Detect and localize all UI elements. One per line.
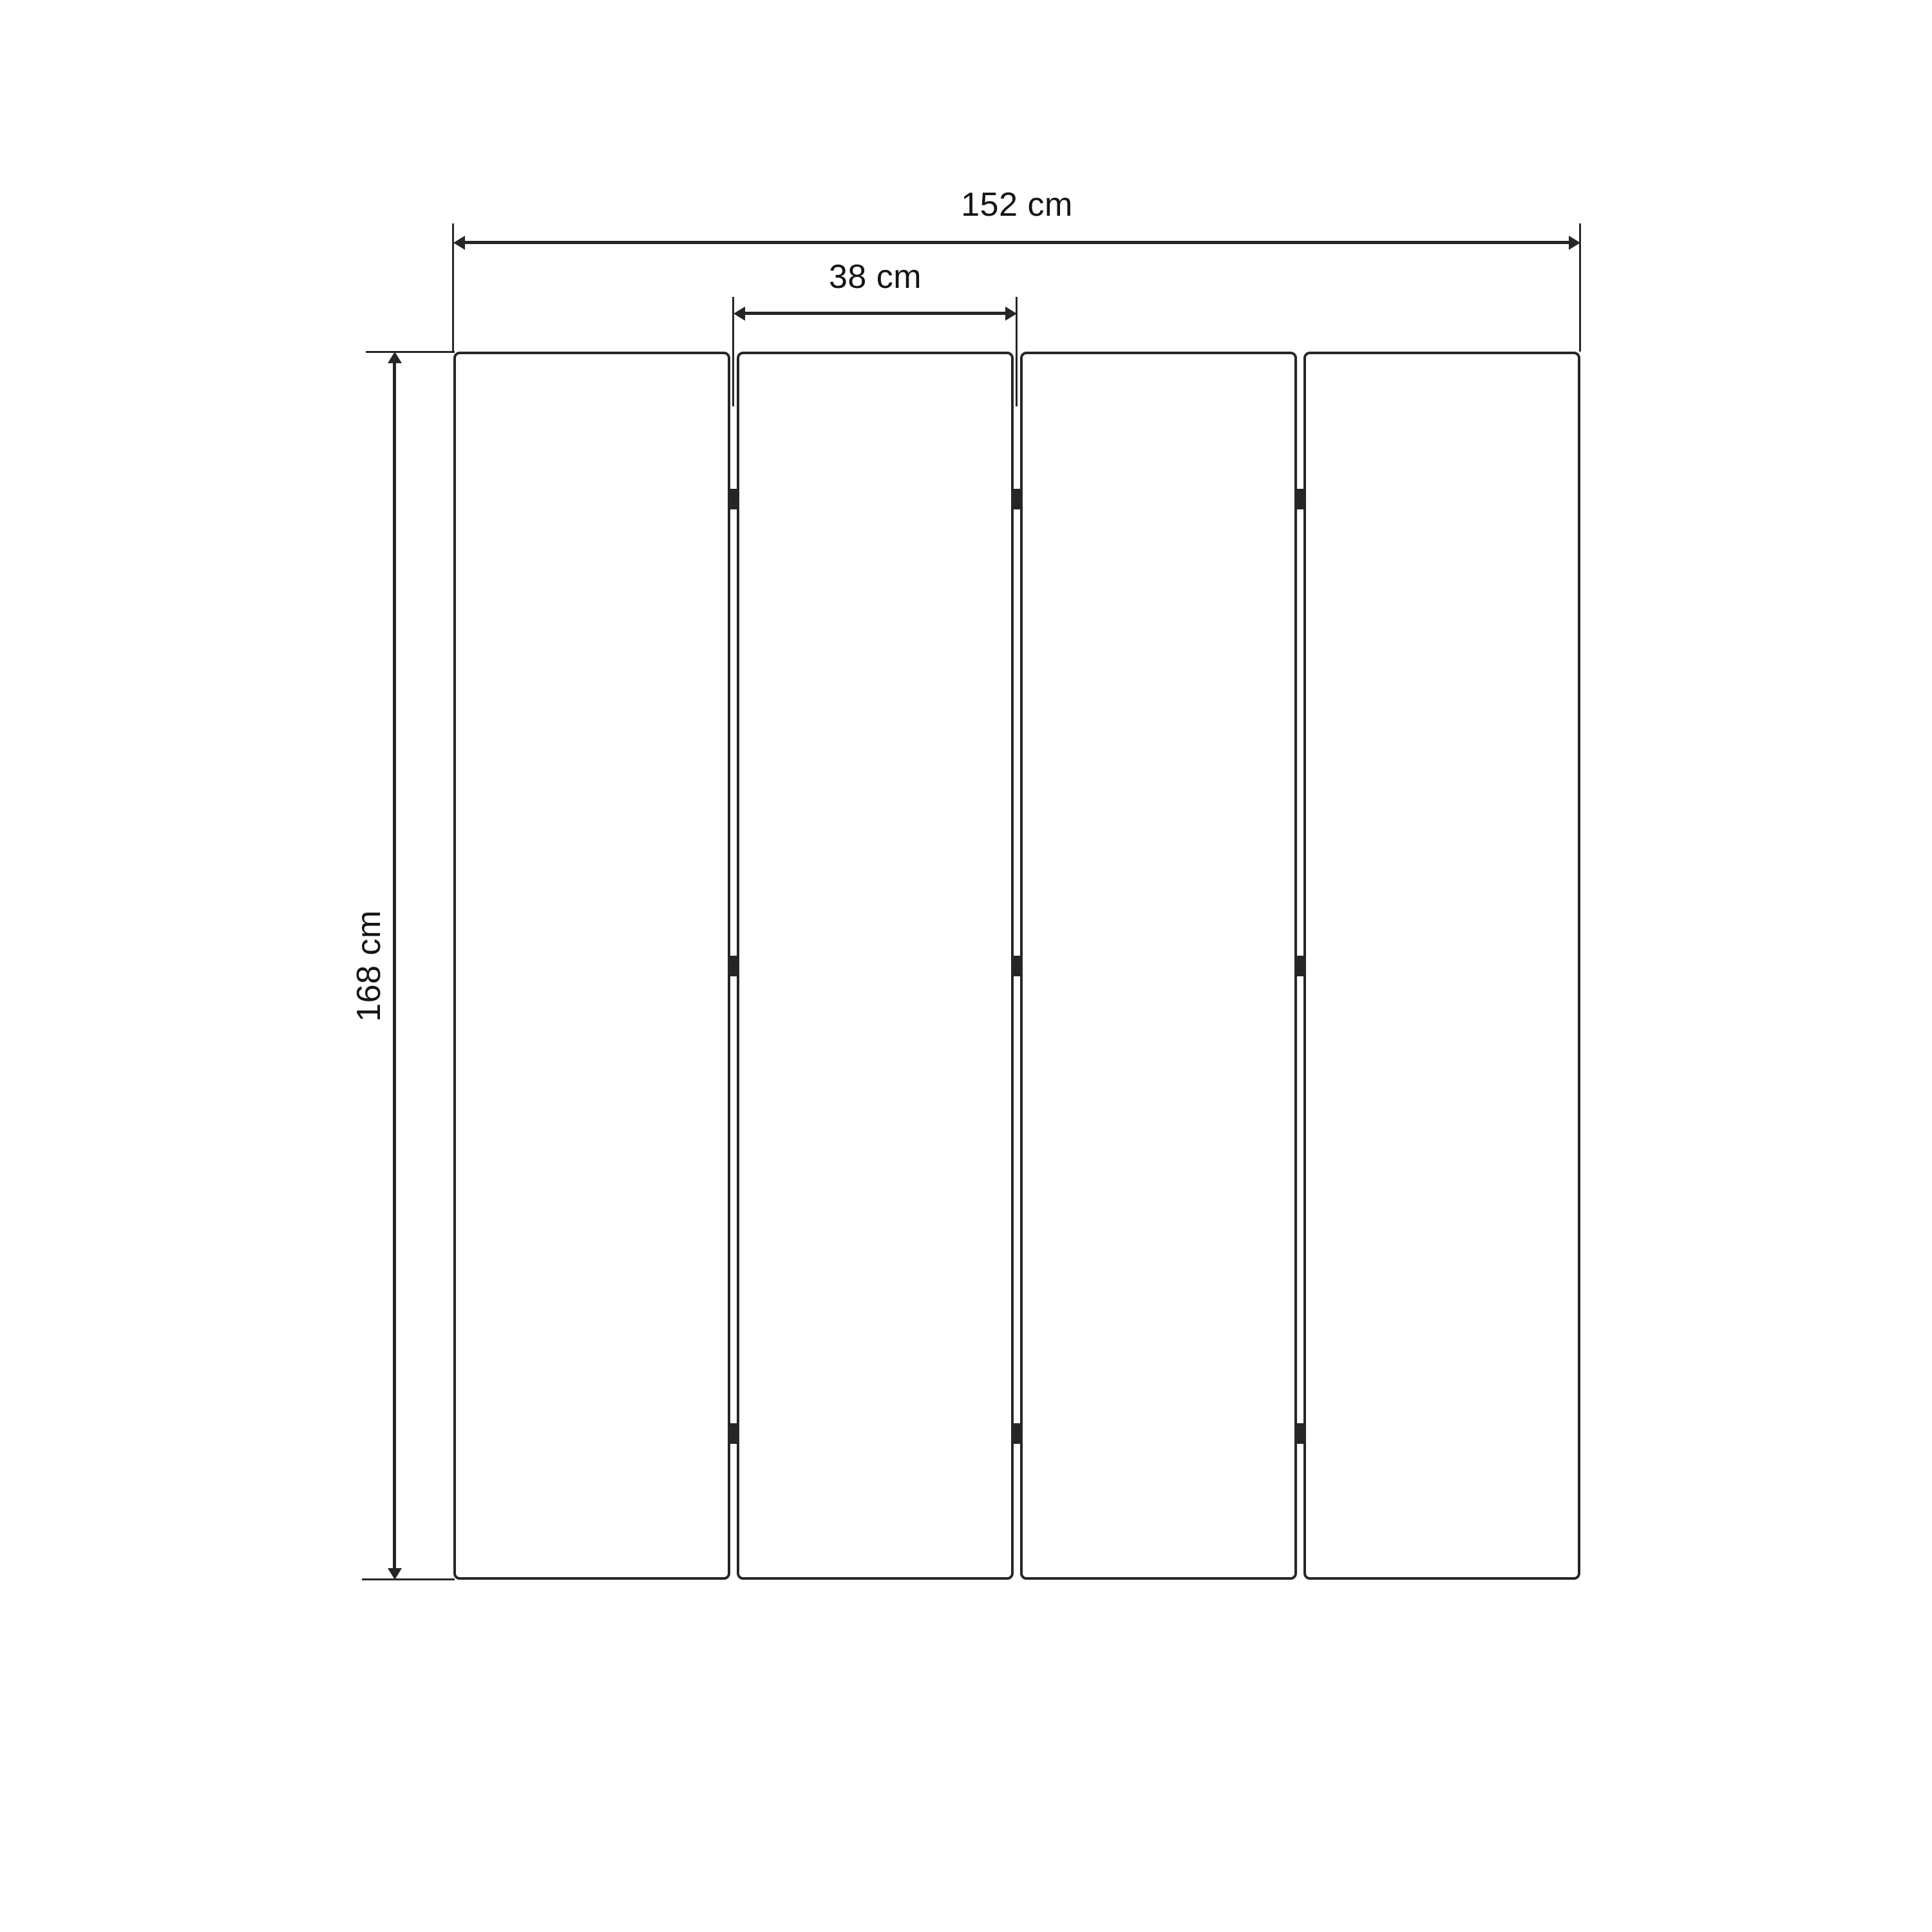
hinge-icon: [729, 489, 738, 509]
arrowhead-right-icon: [1569, 236, 1580, 250]
panel-2: [737, 352, 1014, 1580]
arrowhead-left-icon: [734, 307, 745, 321]
hinge-icon: [1012, 489, 1021, 509]
panel-width-label: 38 cm: [746, 258, 1004, 296]
total-width-label: 152 cm: [888, 185, 1146, 224]
panel-3: [1020, 352, 1297, 1580]
arrowhead-right-icon: [1005, 307, 1017, 321]
arrowhead-left-icon: [453, 236, 465, 250]
hinge-icon: [1296, 489, 1305, 509]
panel-4: [1303, 352, 1580, 1580]
hinge-icon: [1296, 1423, 1305, 1444]
dimension-line: [462, 241, 1570, 244]
dimension-line: [743, 312, 1008, 315]
hinge-icon: [1012, 956, 1021, 976]
dimension-line: [393, 361, 396, 1570]
dimension-diagram: 152 cm 38 cm 168 cm: [0, 0, 1932, 1932]
hinge-icon: [729, 1423, 738, 1444]
hinge-icon: [729, 956, 738, 976]
arrowhead-up-icon: [388, 352, 402, 363]
arrowhead-down-icon: [388, 1568, 402, 1580]
extension-line: [362, 1578, 455, 1580]
height-label: 168 cm: [350, 837, 388, 1095]
hinge-icon: [1296, 956, 1305, 976]
extension-line: [366, 351, 455, 353]
panel-1: [453, 352, 730, 1580]
hinge-icon: [1012, 1423, 1021, 1444]
